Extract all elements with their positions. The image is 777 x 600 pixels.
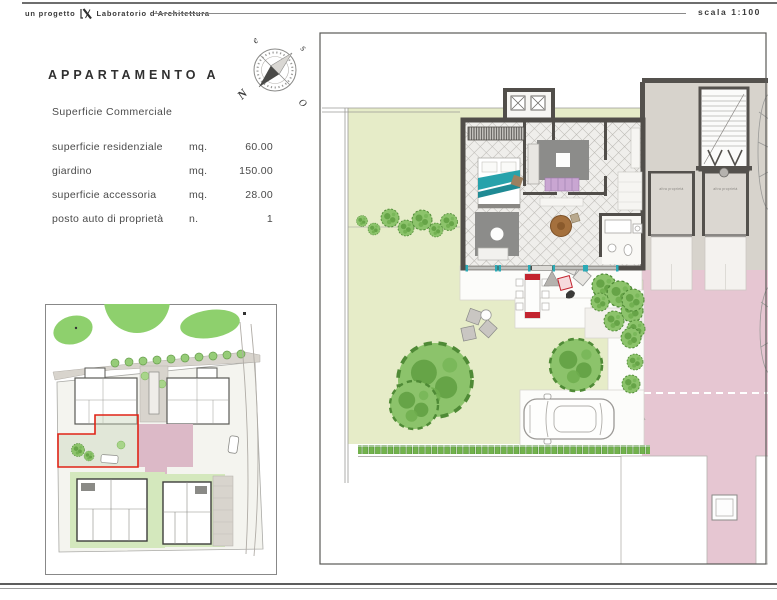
bathtub [605, 220, 631, 233]
parked-car [524, 394, 614, 444]
stairwell [696, 88, 752, 177]
spec-label: posto auto di proprietà [52, 213, 189, 237]
project-prefix-label: un progetto [25, 9, 75, 18]
surface-spec-table: superficie residenziale mq. 60.00 giardi… [52, 141, 273, 237]
other-property-label: altra proprietà [659, 187, 683, 191]
page-title: APPARTAMENTO A [48, 68, 220, 82]
hedge-row [358, 445, 650, 454]
compass-rose: e s N O [236, 30, 320, 116]
compass-north-label: N [236, 85, 251, 103]
spec-label: superficie accessoria [52, 189, 189, 213]
table-row: superficie residenziale mq. 60.00 [52, 141, 273, 165]
table-row: giardino mq. 150.00 [52, 165, 273, 189]
floor-plan: altra proprietà altra proprietà [318, 32, 768, 565]
sofa-cushions [545, 178, 579, 191]
sink [608, 244, 616, 252]
scale-label: scala 1:100 [698, 7, 761, 17]
spec-unit: mq. [189, 189, 227, 213]
spec-value: 28.00 [227, 189, 273, 213]
spec-value: 60.00 [227, 141, 273, 165]
site-plan-map [45, 304, 277, 575]
compass-west-label: O [296, 97, 309, 110]
lower-buildings [77, 479, 211, 544]
header-rule-line [154, 13, 686, 14]
spec-value: 1 [227, 213, 273, 237]
surface-subtitle: Superficie Commerciale [52, 106, 172, 118]
spec-value: 150.00 [227, 165, 273, 189]
site-parked-car [228, 436, 239, 454]
other-property-label: altra proprietà [713, 187, 737, 191]
spec-unit: n. [189, 213, 227, 237]
studio-logo-icon [79, 7, 92, 20]
bottom-border-line [0, 583, 777, 585]
compass-south-label: s [298, 43, 308, 54]
sofa [528, 144, 539, 184]
compass-east-label: e [250, 35, 262, 46]
spec-unit: mq. [189, 165, 227, 189]
top-border-line [22, 2, 777, 4]
bottom-border-line-2 [0, 588, 777, 589]
spec-label: giardino [52, 165, 189, 189]
spec-unit: mq. [189, 141, 227, 165]
wardrobe [468, 127, 524, 140]
table-row: posto auto di proprietà n. 1 [52, 213, 273, 237]
spec-label: superficie residenziale [52, 141, 189, 165]
table-row: superficie accessoria mq. 28.00 [52, 189, 273, 213]
bathroom [602, 216, 642, 264]
toilet [624, 245, 632, 256]
